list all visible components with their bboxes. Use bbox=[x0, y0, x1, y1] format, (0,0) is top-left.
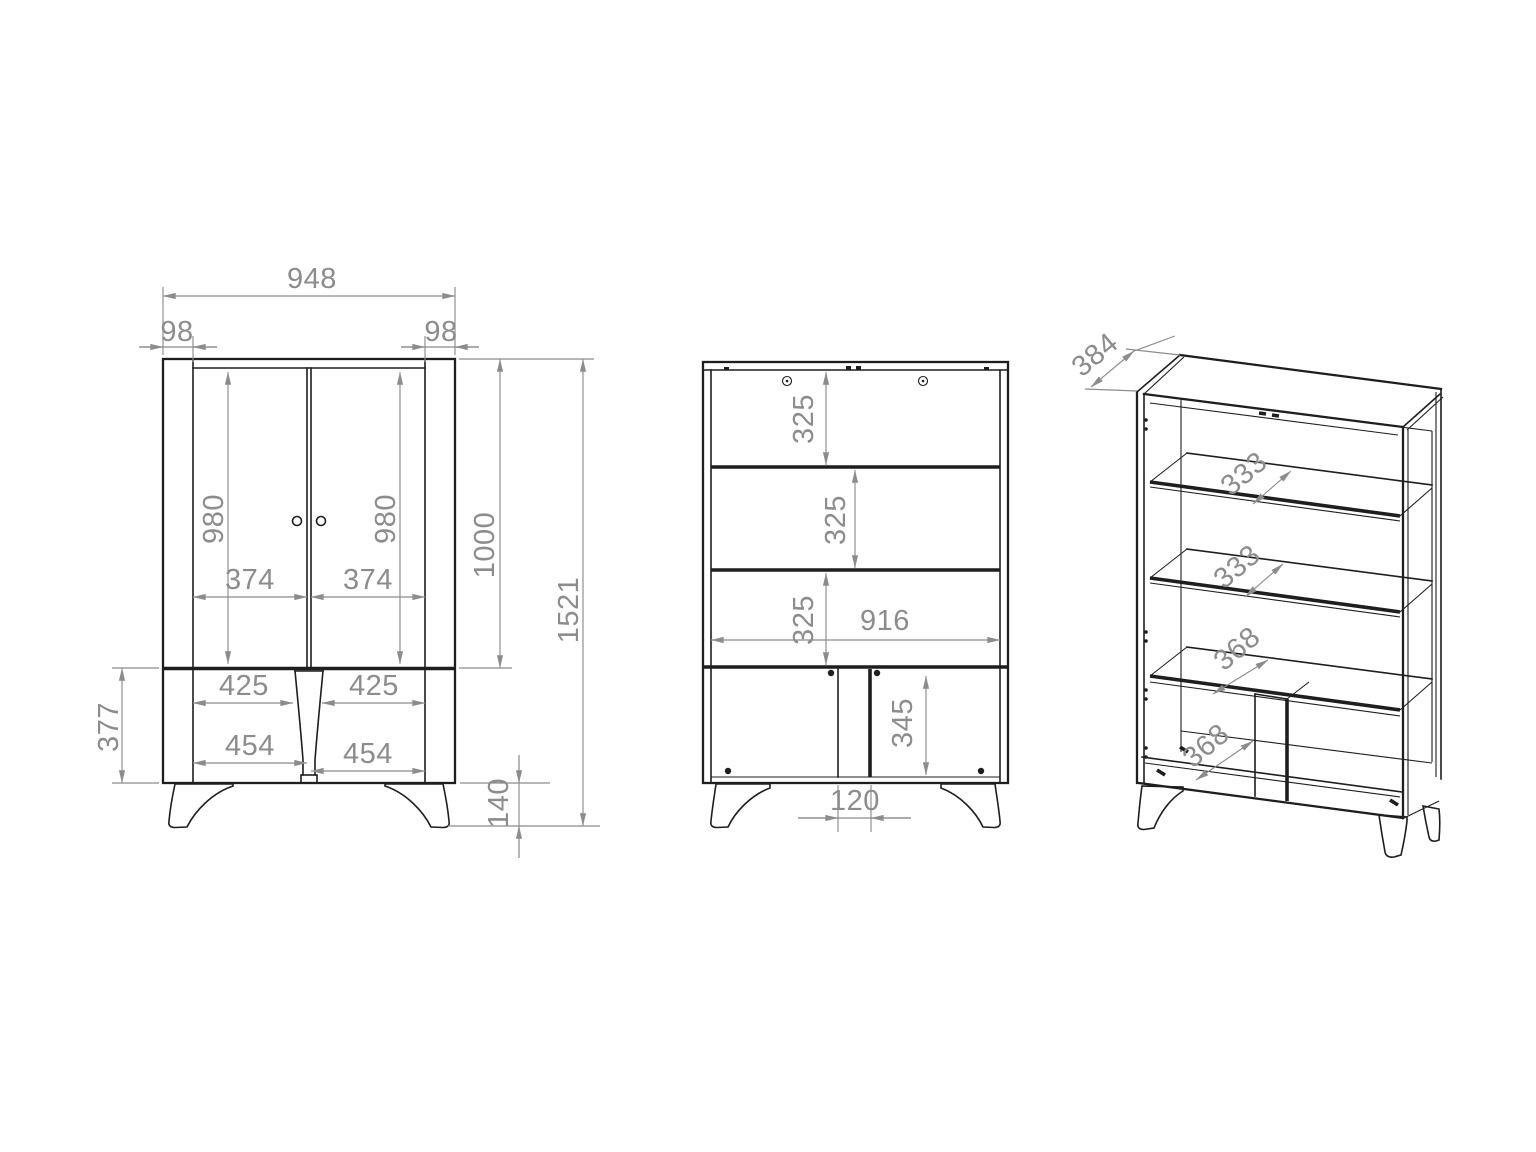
perspective-view: 384 333 333 368 368 bbox=[1066, 327, 1443, 857]
center-handle bbox=[295, 671, 323, 783]
internal-view-dimensions: 325 325 325 916 345 120 bbox=[711, 372, 1000, 832]
dim-front-left-drawer-width: 454 bbox=[225, 730, 275, 762]
dim-internal-lower-compartment: 325 bbox=[788, 595, 820, 645]
internal-view-outline bbox=[703, 362, 1008, 828]
dim-front-leg-height: 140 bbox=[483, 778, 515, 828]
dim-bottom-panel-depth: 368 bbox=[1177, 718, 1236, 775]
front-view-dimensions: 948 98 98 980 980 374 374 1000 1521 425 … bbox=[93, 263, 600, 858]
perspective-view-outline bbox=[1137, 355, 1443, 857]
dim-front-left-door-height: 980 bbox=[198, 494, 230, 544]
technical-drawing-page: 948 98 98 980 980 374 374 1000 1521 425 … bbox=[0, 0, 1536, 1152]
perspective-back-right-leg bbox=[1423, 806, 1440, 841]
internal-left-leg bbox=[711, 784, 770, 828]
furniture-dimension-drawing: 948 98 98 980 980 374 374 1000 1521 425 … bbox=[0, 0, 1536, 1152]
glass-shelf-lower bbox=[1150, 549, 1432, 617]
dim-perspective-depth: 384 bbox=[1066, 327, 1125, 384]
glass-shelf-upper bbox=[1150, 453, 1432, 521]
dim-front-left-drawer-inner-width: 425 bbox=[219, 670, 269, 702]
internal-view: 325 325 325 916 345 120 bbox=[703, 362, 1008, 832]
dim-internal-width: 916 bbox=[860, 605, 910, 637]
dim-front-right-overhang: 98 bbox=[424, 316, 457, 348]
perspective-front-left-leg bbox=[1138, 786, 1183, 830]
dim-front-total-width: 948 bbox=[287, 263, 337, 295]
dim-front-total-height: 1521 bbox=[553, 577, 585, 644]
dim-middle-shelf-depth: 368 bbox=[1208, 621, 1267, 678]
dim-front-upper-section-height: 1000 bbox=[469, 512, 501, 579]
middle-shelf bbox=[1150, 647, 1432, 716]
dim-front-right-door-height: 980 bbox=[370, 494, 402, 544]
front-view-outline bbox=[163, 359, 455, 828]
door-knob-left bbox=[293, 517, 302, 526]
dim-front-lower-section-height: 377 bbox=[93, 702, 125, 752]
dim-front-left-door-width: 374 bbox=[225, 564, 275, 596]
perspective-view-dimensions: 384 333 333 368 368 bbox=[1066, 327, 1291, 780]
dim-front-right-drawer-inner-width: 425 bbox=[349, 670, 399, 702]
perspective-front-right-leg bbox=[1379, 815, 1407, 857]
front-view: 948 98 98 980 980 374 374 1000 1521 425 … bbox=[93, 263, 600, 858]
door-knob-right bbox=[317, 517, 326, 526]
cam-fitting-left bbox=[783, 377, 792, 386]
dim-internal-upper-compartment: 325 bbox=[788, 394, 820, 444]
dim-internal-middle-compartment: 325 bbox=[820, 495, 852, 545]
dim-internal-bottom-compartment: 345 bbox=[887, 698, 919, 748]
center-partition bbox=[838, 669, 870, 777]
front-left-leg bbox=[169, 784, 233, 828]
dim-front-left-overhang: 98 bbox=[160, 316, 193, 348]
dim-front-right-drawer-width: 454 bbox=[343, 738, 393, 770]
dim-front-right-door-width: 374 bbox=[343, 564, 393, 596]
cam-fitting-right bbox=[919, 377, 928, 386]
front-right-leg bbox=[385, 784, 449, 828]
internal-right-leg bbox=[941, 784, 1000, 828]
bottom-panel bbox=[1139, 757, 1439, 819]
dim-internal-partition-width: 120 bbox=[830, 785, 880, 817]
